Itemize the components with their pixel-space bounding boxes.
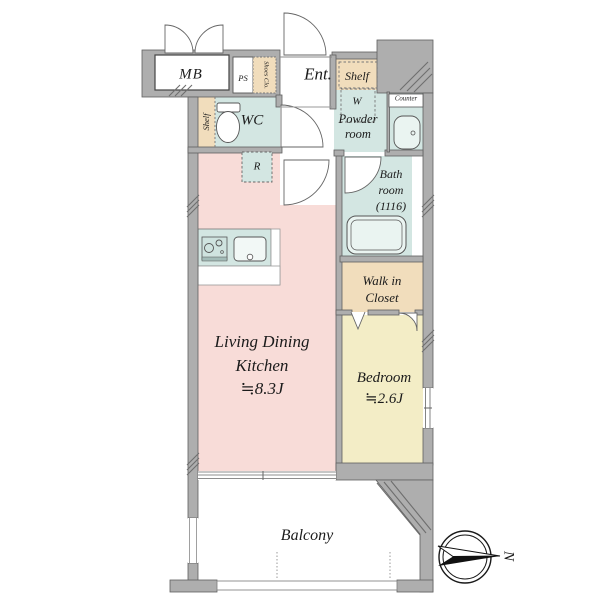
wall-left-lower xyxy=(188,563,198,582)
wc-shelf-label: Shelf xyxy=(202,114,211,131)
wall-powder-bath-stub-left xyxy=(334,150,344,156)
wall-footing-right xyxy=(397,580,433,592)
washbasin-icon xyxy=(394,116,420,149)
mb-door-left xyxy=(165,25,193,53)
shoes-closet-label: Shoes Clo. xyxy=(261,61,268,89)
washer-label: W xyxy=(352,97,361,108)
balcony-label: Balcony xyxy=(281,528,333,544)
wc-label: WC xyxy=(241,114,264,129)
stove-icon xyxy=(202,237,227,260)
kitchen-unit xyxy=(198,229,280,285)
toilet-tank xyxy=(217,103,240,112)
north-label: N xyxy=(501,551,516,561)
wall-bath-closet xyxy=(340,256,423,262)
refrigerator-label: R xyxy=(254,162,261,173)
bedroom-name: Bedroom xyxy=(357,368,411,389)
bath-line1: Bath xyxy=(380,166,403,182)
kitchen-counter-front xyxy=(198,266,280,285)
toilet-icon xyxy=(217,112,240,143)
bath-size: (1116) xyxy=(376,198,406,214)
floor-plan-canvas: MB PS Shoes Clo. Ent. Shelf W Powder roo… xyxy=(0,0,600,600)
bath-line2: room xyxy=(379,182,404,198)
walk-in-closet-label: Walk in Closet xyxy=(363,272,402,306)
bedroom-size: ≒2.6J xyxy=(365,389,403,410)
wall-footing-left xyxy=(170,580,217,592)
mb-door-right xyxy=(195,25,223,53)
entry-shelf-label: Shelf xyxy=(345,70,369,82)
powder-room-label: Powder room xyxy=(339,112,378,142)
powder-room-line2: room xyxy=(345,127,371,142)
ldk-line2: Kitchen xyxy=(236,353,289,377)
wall-closet-bedroom-1 xyxy=(336,310,352,315)
wall-bedroom-bottom xyxy=(336,463,433,480)
wall-powder-bath-stub-right xyxy=(385,150,423,156)
entrance-label: Ent. xyxy=(304,66,332,83)
wall-closet-bedroom-2 xyxy=(368,310,399,315)
wall-right-mid xyxy=(423,428,433,465)
mb-label: MB xyxy=(179,68,203,83)
stove-grill xyxy=(202,257,227,261)
balcony-rail xyxy=(217,581,397,590)
ldk-label: Living Dining Kitchen ≒8.3J xyxy=(215,330,310,401)
counter-label: Counter xyxy=(395,97,417,104)
closet-line2: Closet xyxy=(365,289,398,306)
ldk-line1: Living Dining xyxy=(215,330,310,354)
bathtub-icon xyxy=(347,216,406,254)
ldk-size: ≒8.3J xyxy=(240,377,283,401)
floor-plan xyxy=(0,0,600,600)
bath-room-label: Bath room (1116) xyxy=(376,166,406,214)
wall-top-shelf xyxy=(332,52,378,59)
bedroom-label: Bedroom ≒2.6J xyxy=(357,368,411,410)
entrance-door xyxy=(284,13,326,55)
powder-room-line1: Powder xyxy=(339,112,378,127)
closet-line1: Walk in xyxy=(363,272,402,289)
ps-label: PS xyxy=(238,74,247,83)
faucet-icon xyxy=(247,254,253,260)
compass-icon xyxy=(438,531,500,583)
